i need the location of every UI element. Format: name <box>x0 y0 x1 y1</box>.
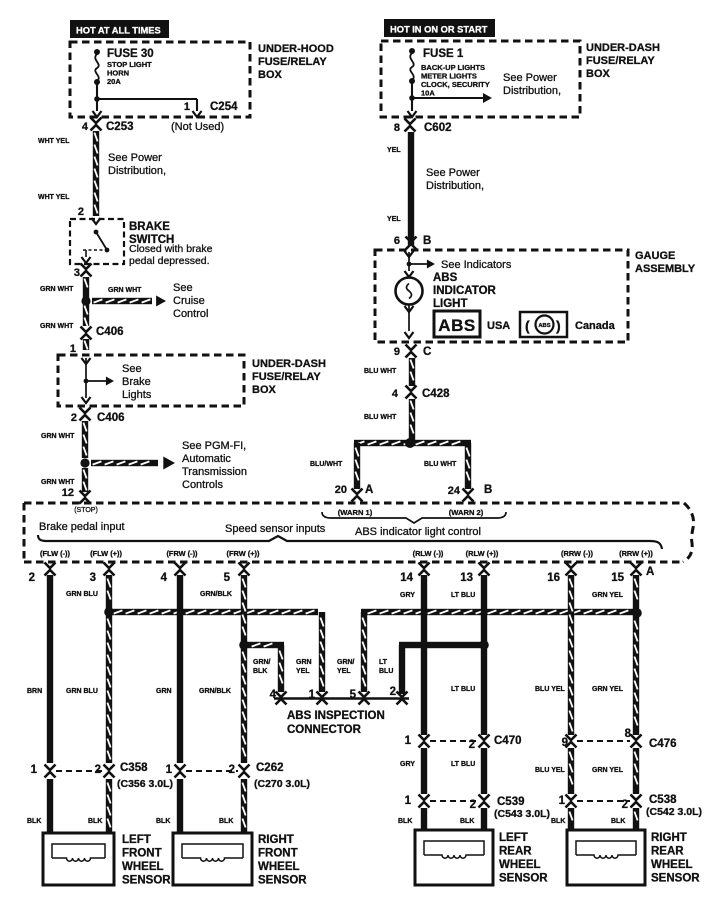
svg-text:9: 9 <box>562 737 568 749</box>
svg-text:GAUGE: GAUGE <box>635 250 675 262</box>
svg-text:2: 2 <box>470 799 476 811</box>
svg-text:14: 14 <box>400 572 413 584</box>
svg-text:2: 2 <box>469 739 475 751</box>
svg-text:LT BLU: LT BLU <box>451 686 475 693</box>
svg-text:1: 1 <box>559 795 566 807</box>
svg-text:HOT IN ON OR START: HOT IN ON OR START <box>390 25 488 35</box>
svg-text:(WARN 2): (WARN 2) <box>449 508 484 517</box>
svg-text:Brake pedal input: Brake pedal input <box>39 521 125 533</box>
svg-text:GRN/BLK: GRN/BLK <box>200 591 232 598</box>
svg-text:ABS: ABS <box>433 272 458 284</box>
svg-text:GRN/: GRN/ <box>253 659 271 666</box>
svg-text:(RLW (+)): (RLW (+)) <box>466 549 499 558</box>
svg-text:See PGM-FI,: See PGM-FI, <box>182 440 246 452</box>
svg-text:YEL: YEL <box>337 668 351 675</box>
svg-text:5: 5 <box>224 572 231 584</box>
svg-text:YEL: YEL <box>296 668 310 675</box>
svg-text:(RRW (-)): (RRW (-)) <box>561 549 593 558</box>
svg-text:3: 3 <box>74 267 80 279</box>
svg-text:GRN YEL: GRN YEL <box>592 592 624 599</box>
svg-text:WHT YEL: WHT YEL <box>38 194 70 201</box>
svg-text:GRN/BLK: GRN/BLK <box>199 688 231 695</box>
svg-text:20A: 20A <box>107 77 121 86</box>
svg-text:4: 4 <box>82 121 89 133</box>
svg-text:ASSEMBLY: ASSEMBLY <box>635 263 696 275</box>
svg-text:12: 12 <box>62 487 74 499</box>
svg-text:UNDER-HOOD: UNDER-HOOD <box>258 43 334 55</box>
svg-text:Brake: Brake <box>122 376 151 388</box>
svg-text:Automatic: Automatic <box>182 453 231 465</box>
svg-text:BLK: BLK <box>460 818 474 825</box>
svg-text:Distribution,: Distribution, <box>426 180 484 192</box>
svg-text:YEL: YEL <box>387 216 401 223</box>
svg-text:LEFT: LEFT <box>499 832 528 844</box>
svg-text:C262: C262 <box>256 762 284 774</box>
svg-text:BRN: BRN <box>27 688 42 695</box>
svg-text:GRN/: GRN/ <box>337 659 355 666</box>
svg-text:(FRW (+)): (FRW (+)) <box>227 549 260 558</box>
svg-text:SENSOR: SENSOR <box>122 875 171 887</box>
svg-text:GRN BLU: GRN BLU <box>66 688 98 695</box>
svg-text:B: B <box>484 484 492 496</box>
svg-text:BLU WHT: BLU WHT <box>364 368 397 375</box>
svg-text:2: 2 <box>229 764 235 776</box>
svg-text:(C542 3.0L): (C542 3.0L) <box>646 806 702 818</box>
svg-text:BLK: BLK <box>88 818 102 825</box>
svg-text:Distribution,: Distribution, <box>108 165 166 177</box>
svg-text:Canada: Canada <box>575 320 616 332</box>
svg-text:GRN: GRN <box>296 659 312 666</box>
svg-text:GRN WHT: GRN WHT <box>108 287 142 294</box>
svg-text:RIGHT: RIGHT <box>651 832 687 844</box>
svg-text:): ) <box>556 318 561 334</box>
svg-text:ABS INSPECTION: ABS INSPECTION <box>287 710 385 722</box>
svg-text:LIGHT: LIGHT <box>433 298 468 310</box>
svg-text:GRN: GRN <box>156 688 172 695</box>
svg-text:BLK: BLK <box>27 818 41 825</box>
svg-text:BLK: BLK <box>611 818 625 825</box>
svg-text:GRN WHT: GRN WHT <box>41 479 75 486</box>
svg-text:See: See <box>173 282 193 294</box>
svg-text:LT BLU: LT BLU <box>451 592 475 599</box>
svg-text:CONNECTOR: CONNECTOR <box>287 724 362 736</box>
svg-text:LEFT: LEFT <box>122 834 151 846</box>
svg-text:Speed sensor inputs: Speed sensor inputs <box>225 523 326 535</box>
svg-text:BOX: BOX <box>252 384 277 396</box>
svg-text:(STOP): (STOP) <box>74 507 98 514</box>
svg-text:SENSOR: SENSOR <box>499 873 548 885</box>
svg-text:A: A <box>365 484 373 496</box>
svg-text:BLU YEL: BLU YEL <box>535 767 566 774</box>
svg-text:15: 15 <box>611 572 624 584</box>
svg-text:(RRW (+)): (RRW (+)) <box>619 549 653 558</box>
svg-text:(FLW (-)): (FLW (-)) <box>40 549 70 558</box>
svg-text:FRONT: FRONT <box>258 848 298 860</box>
svg-text:GRY: GRY <box>400 592 415 599</box>
svg-text:4: 4 <box>392 388 399 400</box>
svg-text:BRAKE: BRAKE <box>129 221 170 233</box>
svg-text:See Indicators: See Indicators <box>441 259 512 271</box>
svg-text:(C543 3.0L): (C543 3.0L) <box>494 808 550 820</box>
svg-text:16: 16 <box>547 572 560 584</box>
svg-text:1: 1 <box>405 735 412 747</box>
svg-text:C358: C358 <box>120 762 148 774</box>
svg-text:2: 2 <box>29 572 35 584</box>
svg-text:2: 2 <box>622 799 628 811</box>
svg-text:20: 20 <box>335 484 347 496</box>
svg-text:USA: USA <box>487 320 510 332</box>
svg-text:YEL: YEL <box>387 147 401 154</box>
svg-text:5: 5 <box>350 689 357 701</box>
svg-text:See Power: See Power <box>426 167 480 179</box>
svg-text:C602: C602 <box>424 122 452 134</box>
svg-text:B: B <box>423 235 431 247</box>
svg-text:C406: C406 <box>97 412 125 424</box>
svg-text:WHEEL: WHEEL <box>122 861 164 873</box>
svg-text:1: 1 <box>184 101 190 113</box>
svg-text:INDICATOR: INDICATOR <box>433 285 497 297</box>
svg-text:2: 2 <box>71 412 77 424</box>
svg-text:C476: C476 <box>649 738 677 750</box>
svg-text:C428: C428 <box>422 388 450 400</box>
svg-text:WHEEL: WHEEL <box>258 861 300 873</box>
svg-text:1: 1 <box>31 764 38 776</box>
svg-text:GRN YEL: GRN YEL <box>592 686 624 693</box>
svg-text:pedal depressed.: pedal depressed. <box>129 255 210 267</box>
svg-text:GRN YEL: GRN YEL <box>592 767 624 774</box>
svg-text:(Not Used): (Not Used) <box>171 121 224 133</box>
svg-text:8: 8 <box>394 122 400 134</box>
svg-text:1: 1 <box>70 343 76 355</box>
svg-text:FUSE 1: FUSE 1 <box>423 48 464 60</box>
svg-text:6: 6 <box>394 235 400 247</box>
svg-text:ABS indicator light control: ABS indicator light control <box>355 526 481 538</box>
svg-text:C: C <box>423 346 431 358</box>
svg-text:UNDER-DASH: UNDER-DASH <box>252 358 326 370</box>
svg-text:SENSOR: SENSOR <box>651 873 700 885</box>
svg-text:ABS: ABS <box>538 323 550 329</box>
svg-text:BLU/WHT: BLU/WHT <box>310 461 343 468</box>
svg-text:Lights: Lights <box>122 389 152 401</box>
svg-text:BLK: BLK <box>253 668 267 675</box>
svg-text:GRN WHT: GRN WHT <box>40 286 74 293</box>
svg-text:24: 24 <box>448 485 461 497</box>
svg-text:REAR: REAR <box>651 846 684 858</box>
svg-text:GRN WHT: GRN WHT <box>41 433 75 440</box>
svg-text:Controls: Controls <box>182 479 223 491</box>
svg-text:A: A <box>646 566 654 578</box>
svg-text:8: 8 <box>625 728 632 740</box>
svg-text:4: 4 <box>161 572 168 584</box>
svg-text:Distribution,: Distribution, <box>503 85 561 97</box>
svg-text:FUSE/RELAY: FUSE/RELAY <box>586 55 655 67</box>
svg-text:BLK: BLK <box>551 818 565 825</box>
svg-text:C253: C253 <box>106 121 134 133</box>
svg-text:(: ( <box>525 318 530 334</box>
svg-text:(C270 3.0L): (C270 3.0L) <box>254 778 310 790</box>
svg-text:LT BLU: LT BLU <box>451 761 475 768</box>
svg-text:(FLW (+)): (FLW (+)) <box>90 549 122 558</box>
svg-text:WHEEL: WHEEL <box>499 859 541 871</box>
svg-text:GRY: GRY <box>400 761 415 768</box>
svg-text:2: 2 <box>95 764 101 776</box>
svg-text:FUSE 30: FUSE 30 <box>107 48 154 60</box>
svg-text:BOX: BOX <box>258 69 283 81</box>
svg-text:(WARN 1): (WARN 1) <box>338 508 373 517</box>
svg-text:BLU WHT: BLU WHT <box>424 461 457 468</box>
svg-text:FRONT: FRONT <box>122 848 162 860</box>
svg-text:BLK: BLK <box>219 818 233 825</box>
svg-text:BOX: BOX <box>586 68 611 80</box>
svg-text:RIGHT: RIGHT <box>258 834 294 846</box>
svg-text:C538: C538 <box>649 794 677 806</box>
svg-text:Cruise: Cruise <box>173 295 205 307</box>
svg-text:FUSE/RELAY: FUSE/RELAY <box>252 371 321 383</box>
svg-text:HOT AT ALL TIMES: HOT AT ALL TIMES <box>76 26 161 36</box>
svg-text:FUSE/RELAY: FUSE/RELAY <box>258 56 327 68</box>
svg-text:13: 13 <box>460 572 473 584</box>
svg-text:Closed with brake: Closed with brake <box>129 243 213 255</box>
svg-text:BLU WHT: BLU WHT <box>364 414 397 421</box>
svg-text:C470: C470 <box>494 735 522 747</box>
svg-text:10A: 10A <box>421 89 435 98</box>
svg-text:SENSOR: SENSOR <box>258 875 307 887</box>
svg-text:GRN BLU: GRN BLU <box>66 591 98 598</box>
svg-text:2: 2 <box>390 686 396 698</box>
svg-text:LT: LT <box>379 659 388 666</box>
svg-text:See: See <box>122 363 142 375</box>
svg-text:Transmission: Transmission <box>182 466 247 478</box>
svg-text:1: 1 <box>166 764 173 776</box>
svg-text:(RLW (-)): (RLW (-)) <box>413 549 444 558</box>
svg-text:1: 1 <box>405 795 412 807</box>
svg-text:ABS: ABS <box>438 316 475 335</box>
svg-text:4: 4 <box>270 689 277 701</box>
svg-text:BLU YEL: BLU YEL <box>535 686 566 693</box>
svg-text:9: 9 <box>394 346 400 358</box>
svg-text:BLU: BLU <box>379 668 393 675</box>
svg-text:BLK: BLK <box>398 818 412 825</box>
svg-text:UNDER-DASH: UNDER-DASH <box>586 42 660 54</box>
svg-text:WHEEL: WHEEL <box>651 859 693 871</box>
svg-text:See Power: See Power <box>108 152 162 164</box>
svg-text:See Power: See Power <box>503 72 557 84</box>
svg-text:(C356 3.0L): (C356 3.0L) <box>117 778 173 790</box>
svg-text:REAR: REAR <box>499 846 532 858</box>
svg-text:3: 3 <box>90 572 96 584</box>
svg-text:WHT YEL: WHT YEL <box>38 138 70 145</box>
svg-text:(FRW (-)): (FRW (-)) <box>166 549 198 558</box>
svg-text:Control: Control <box>173 308 208 320</box>
svg-text:C254: C254 <box>210 101 238 113</box>
svg-text:GRN WHT: GRN WHT <box>40 323 74 330</box>
svg-text:2: 2 <box>78 206 84 218</box>
svg-text:1: 1 <box>309 689 316 701</box>
svg-text:C406: C406 <box>96 326 124 338</box>
svg-text:C539: C539 <box>497 796 525 808</box>
svg-text:BLK: BLK <box>156 818 170 825</box>
